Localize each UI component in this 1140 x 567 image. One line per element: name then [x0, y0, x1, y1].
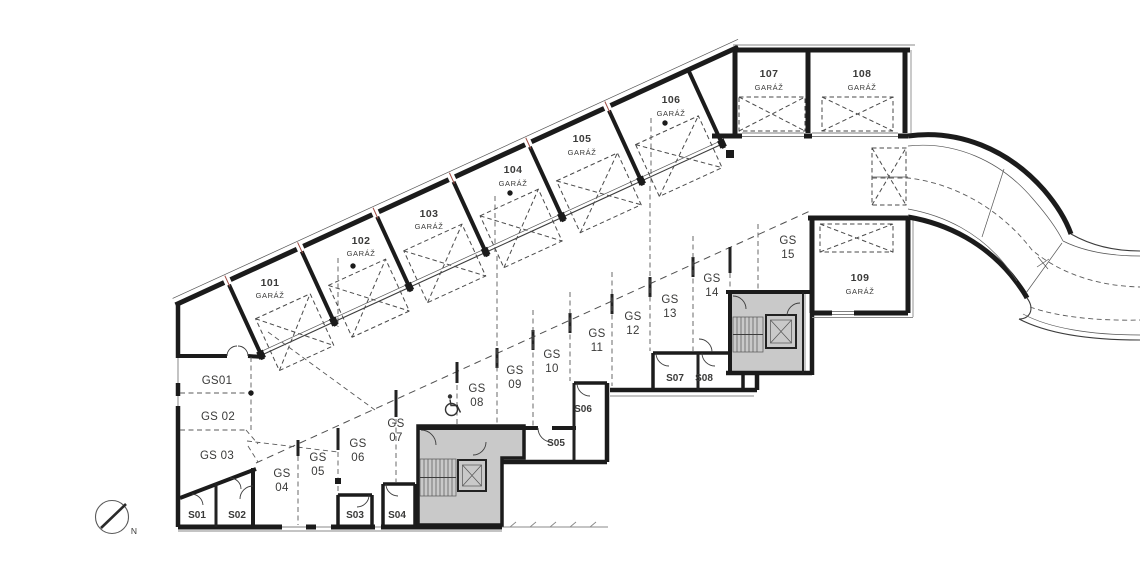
- aisle-door-arc: [699, 339, 712, 352]
- gs06-label: GS06: [349, 438, 366, 464]
- svg-text:08: 08: [470, 397, 483, 409]
- svg-text:106: 106: [662, 94, 681, 106]
- wing-back-wall: [176, 47, 739, 305]
- gs04-label: GS04: [273, 468, 290, 494]
- svg-text:GARÁŽ: GARÁŽ: [499, 179, 528, 188]
- svg-text:GS: GS: [309, 452, 326, 464]
- stair-core-2: [726, 292, 812, 375]
- gs14-label: GS14: [703, 273, 720, 299]
- svg-text:06: 06: [351, 452, 364, 464]
- svg-text:GS: GS: [468, 383, 485, 395]
- compass: N: [96, 501, 138, 537]
- svg-text:GARÁŽ: GARÁŽ: [256, 291, 285, 300]
- svg-text:GARÁŽ: GARÁŽ: [848, 83, 877, 92]
- stall-102: [328, 259, 409, 337]
- stall-ramp-corridor: [872, 148, 908, 205]
- s03-label: S03: [346, 510, 364, 521]
- s01-door-arc: [192, 494, 203, 505]
- entry-ramp: [872, 135, 1140, 340]
- s08-label: S08: [695, 373, 713, 384]
- stall-107: [739, 97, 805, 131]
- garage-axis-lines: [338, 118, 651, 327]
- garage-109-label: 109GARÁŽ: [846, 272, 875, 296]
- ramp-outer-wall: [908, 135, 1071, 234]
- svg-text:GS: GS: [779, 235, 796, 247]
- svg-text:14: 14: [705, 287, 719, 299]
- stair-core-1: [418, 426, 524, 525]
- garage-wing: [173, 39, 784, 398]
- svg-text:GS: GS: [273, 468, 290, 480]
- column-dot: [507, 190, 512, 195]
- svg-text:GARÁŽ: GARÁŽ: [415, 222, 444, 231]
- svg-text:GS: GS: [349, 438, 366, 450]
- column-dot: [662, 120, 667, 125]
- column-dot: [350, 263, 355, 268]
- garage-parking-stalls: [256, 116, 722, 371]
- stall-106: [636, 116, 722, 197]
- core1-outline: [418, 426, 524, 525]
- svg-text:109: 109: [851, 272, 870, 284]
- gs12-label: GS12: [624, 311, 641, 337]
- svg-text:GS: GS: [506, 365, 523, 377]
- garage-102-label: 102GARÁŽ: [347, 235, 376, 258]
- gs03-label: GS 03: [200, 450, 234, 462]
- stall-105: [557, 153, 642, 233]
- garage-101-label: 101GARÁŽ: [256, 277, 285, 300]
- stall-103: [404, 224, 486, 302]
- s01-s02-top-wall: [180, 469, 256, 498]
- gs09-label: GS09: [506, 365, 523, 391]
- garage-108-label: 108GARÁŽ: [848, 68, 877, 92]
- svg-text:07: 07: [389, 432, 402, 444]
- svg-text:101: 101: [261, 277, 280, 289]
- s03-door-arc: [357, 495, 369, 507]
- svg-text:10: 10: [545, 363, 558, 375]
- compass-needle: [101, 504, 126, 528]
- ramp-joint-line-1: [982, 169, 1004, 237]
- gs05-label: GS05: [309, 452, 326, 478]
- gs01-label: GS01: [202, 375, 233, 387]
- garage-107-label: 107GARÁŽ: [755, 68, 784, 92]
- svg-text:09: 09: [508, 379, 521, 391]
- s04-label: S04: [388, 510, 406, 521]
- column-marker: [335, 478, 341, 484]
- gs11-label: GS11: [588, 328, 605, 354]
- column-dot: [248, 390, 253, 395]
- gs08-label: GS08: [468, 383, 485, 409]
- svg-text:05: 05: [311, 466, 324, 478]
- garage-104-label: 104GARÁŽ: [499, 164, 528, 188]
- gs02-label: GS 02: [201, 411, 235, 423]
- svg-text:GS: GS: [588, 328, 605, 340]
- gs13-label: GS13: [661, 294, 678, 320]
- core2-elevator: [766, 315, 796, 348]
- svg-text:104: 104: [504, 164, 523, 176]
- ramp-inner-wall: [908, 217, 1027, 298]
- garage-109-room: [808, 218, 913, 318]
- garage-door-line: [260, 141, 722, 355]
- svg-text:GARÁŽ: GARÁŽ: [347, 249, 376, 258]
- s06-door-arc: [577, 383, 590, 396]
- garage-105-label: 105GARÁŽ: [568, 133, 597, 157]
- compass-north-label: N: [131, 526, 137, 536]
- gs10-label: GS10: [543, 349, 560, 375]
- svg-text:102: 102: [352, 235, 371, 247]
- svg-text:12: 12: [626, 325, 639, 337]
- svg-text:GS: GS: [624, 311, 641, 323]
- s06-label: S06: [574, 404, 592, 415]
- svg-text:GARÁŽ: GARÁŽ: [755, 83, 784, 92]
- svg-text:GS: GS: [661, 294, 678, 306]
- wheelchair-icon: [446, 394, 461, 415]
- svg-text:GARÁŽ: GARÁŽ: [657, 109, 686, 118]
- svg-text:107: 107: [760, 68, 779, 80]
- svg-text:GS: GS: [387, 418, 404, 430]
- svg-text:04: 04: [275, 482, 289, 494]
- ramp-wall-end-hook: [1019, 298, 1031, 319]
- garage-106-label: 106GARÁŽ: [657, 94, 686, 118]
- south-walls: [178, 468, 608, 531]
- s01-label: S01: [188, 510, 206, 521]
- svg-text:15: 15: [781, 249, 794, 261]
- entrance-door-arc-left: [227, 346, 237, 356]
- s07-label: S07: [666, 373, 684, 384]
- gs04-gs05-front-line: [247, 441, 338, 452]
- svg-text:GARÁŽ: GARÁŽ: [846, 287, 875, 296]
- s02-label: S02: [228, 510, 246, 521]
- floor-plan-drawing: N 101GARÁŽ 102GARÁŽ 103GARÁŽ 104GARÁŽ 10…: [0, 0, 1140, 567]
- svg-text:108: 108: [853, 68, 872, 80]
- s05-label: S05: [547, 438, 565, 449]
- ramp-joint-line-2: [1026, 243, 1062, 293]
- svg-text:11: 11: [591, 342, 604, 354]
- svg-text:13: 13: [663, 308, 676, 320]
- stall-101: [256, 294, 334, 371]
- s04-door-arc: [386, 484, 398, 496]
- stall-109: [820, 224, 893, 252]
- entrance-door-arc-right: [238, 346, 248, 356]
- drive-funnel-line: [268, 332, 375, 410]
- s07-door-arc: [656, 353, 669, 366]
- svg-text:GS: GS: [543, 349, 560, 361]
- stall-108: [822, 97, 893, 131]
- svg-text:105: 105: [573, 133, 592, 145]
- stall-104: [480, 189, 562, 267]
- svg-text:GS: GS: [703, 273, 720, 285]
- garages-107-108: [712, 45, 915, 205]
- wing-outer-face-line: [173, 39, 738, 298]
- garage-103-label: 103GARÁŽ: [415, 208, 444, 231]
- svg-text:103: 103: [420, 208, 439, 220]
- svg-text:GARÁŽ: GARÁŽ: [568, 148, 597, 157]
- gs15-label: GS15: [779, 235, 796, 261]
- s08-door-arc: [702, 353, 715, 366]
- floor-plan-page: N 101GARÁŽ 102GARÁŽ 103GARÁŽ 104GARÁŽ 10…: [0, 0, 1140, 567]
